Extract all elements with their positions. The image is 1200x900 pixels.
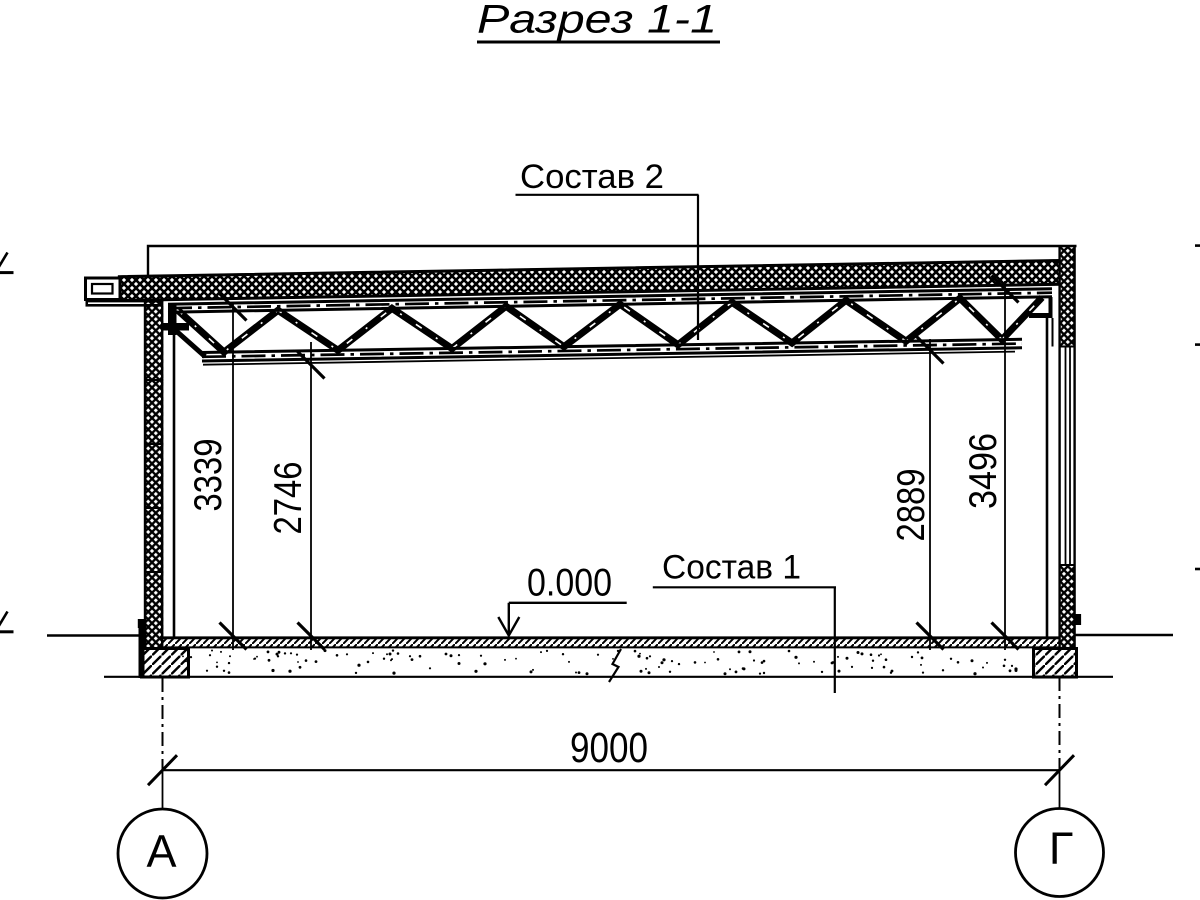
svg-text:Состав 1: Состав 1 (662, 549, 801, 587)
svg-text:3339: 3339 (187, 439, 230, 512)
svg-text:Состав 2: Состав 2 (520, 158, 664, 196)
svg-text:2889: 2889 (890, 469, 933, 542)
svg-text:Разрез 1-1: Разрез 1-1 (477, 0, 717, 42)
svg-text:9000: 9000 (570, 724, 648, 772)
svg-text:2746: 2746 (267, 462, 310, 535)
svg-text:3496: 3496 (962, 433, 1005, 509)
svg-text:0.000: 0.000 (527, 562, 612, 605)
svg-text:Г: Г (1049, 823, 1073, 874)
svg-text:А: А (146, 826, 176, 877)
